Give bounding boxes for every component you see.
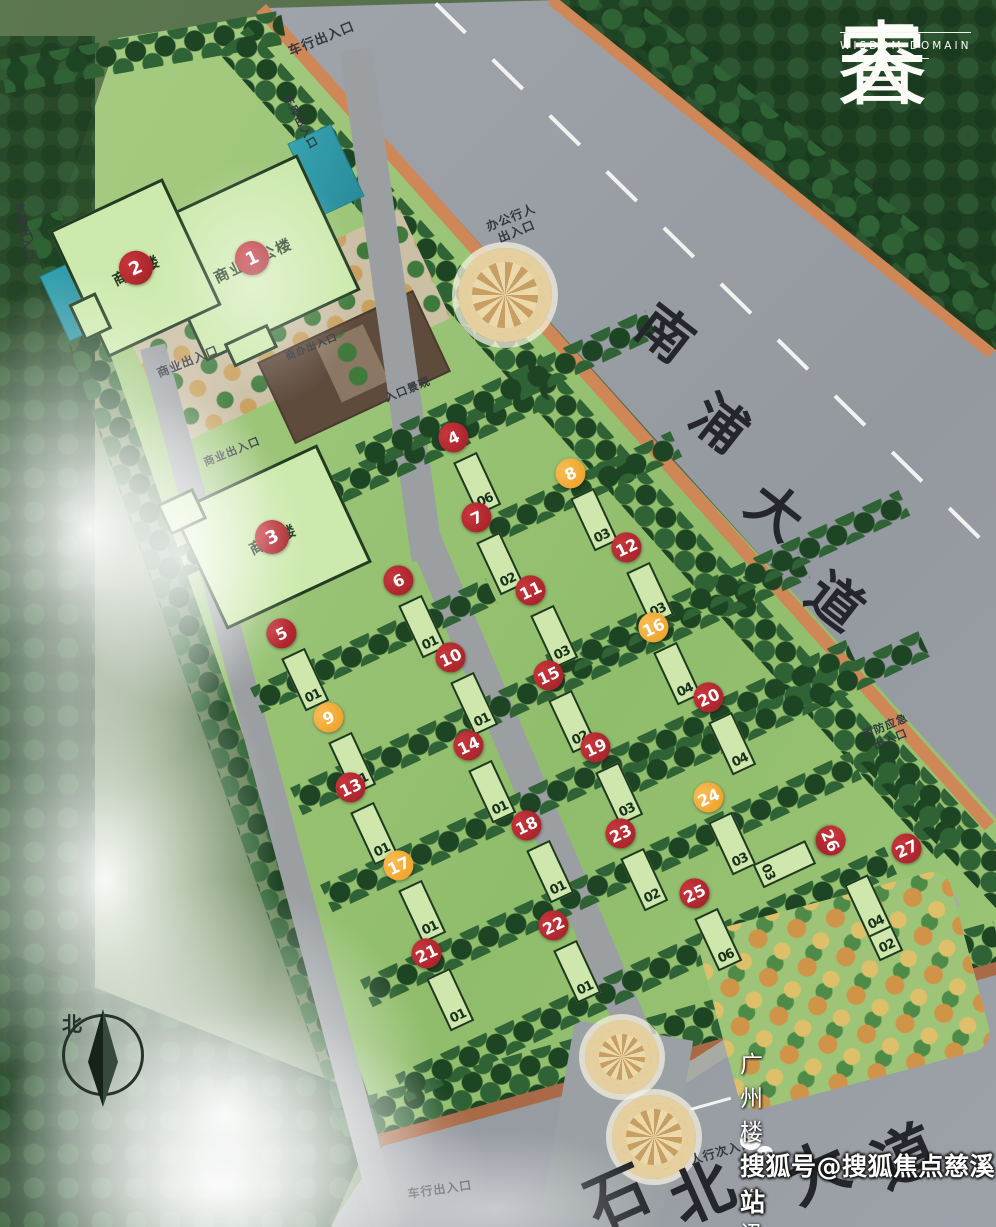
entrance-landscape: 入口景观 — [383, 375, 433, 406]
watermark-line2: 搜狐号@搜狐焦点慈溪站 — [740, 1147, 996, 1219]
logo-character-bottom: 睿 — [836, 22, 928, 109]
fog-overlay — [55, 400, 305, 710]
office-pedestrian-entrance: 办公行人出入口 — [484, 201, 543, 248]
vehicle-entrance-top: 车行出入口 — [286, 19, 357, 60]
compass-ring — [62, 1014, 144, 1096]
garage-entrance-top: 车库出入口 — [280, 92, 320, 151]
compass-needle — [88, 1009, 118, 1107]
site-plan-canvas: 1 商业办公楼 2 商业楼 3 商业楼 40102030405065050403… — [0, 0, 996, 1227]
fog-overlay — [150, 160, 360, 410]
garage-entrance-left: 车库出入口 — [11, 201, 37, 263]
fire-emergency-entrance: 消防应急出入口 — [861, 711, 916, 754]
